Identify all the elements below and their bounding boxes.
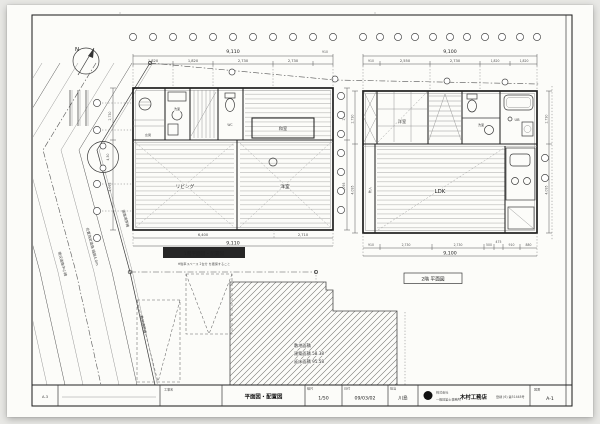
title-block: A-3 工事名 平面図・配置図 縮尺 1/50 日付 09/03/02 担当 川… — [32, 385, 572, 406]
scale-label: 縮尺 — [307, 386, 313, 391]
company-logo-icon — [424, 391, 433, 400]
dim-v: 4,095 — [545, 186, 549, 195]
room-label-bedroom-1f: 洋室 — [280, 183, 290, 190]
plan-title-2f: 2階 平面図 — [421, 276, 445, 283]
dim-seg: 2,730 — [288, 59, 299, 63]
dim-seg: 910 — [368, 59, 374, 63]
dim-seg: 1,820 — [188, 59, 199, 63]
dim-v: 4,095 — [351, 186, 355, 195]
dim-v: 2,730 — [545, 115, 549, 124]
room-label-bath: UB — [514, 118, 520, 122]
dim-seg: 2,730 — [402, 243, 411, 247]
dim-overall: 9,110 — [226, 241, 239, 247]
room-label-ldk: LDK — [435, 189, 446, 195]
dim-seg: 2,730 — [238, 59, 249, 63]
floor-plan-drawing: N 4, — [7, 5, 593, 417]
genkan-1f — [133, 98, 165, 126]
dim-seg: 1,820 — [491, 59, 500, 63]
dim-seg: 2,710 — [298, 233, 309, 237]
existing-building-hatch: 敷地面積 建築面積 58.38 延床面積 95.58 — [230, 282, 405, 385]
dims-top-1f: 9,110 910 1,820 1,820 2,730 2,730 — [133, 49, 333, 88]
toilet-2f-icon — [462, 94, 500, 135]
date-value: 09/03/02 — [354, 396, 375, 402]
tree-circle: 4,50 — [88, 142, 119, 173]
room-label-wash-1f: 洗面 — [174, 106, 180, 111]
kitchen-counter-icon — [506, 148, 535, 229]
building-2f: 洋室 洗面 UB LDK 物入 — [363, 91, 537, 233]
dims-bottom-1f: 6,400 2,710 9,110 — [133, 230, 333, 247]
dim-seg: 1,820 — [148, 59, 159, 63]
road-label-0: 道路境界線 — [121, 209, 131, 228]
dim-seg: 2,730 — [454, 243, 463, 247]
grid-bubbles-2f — [359, 33, 540, 40]
dim-overall-2f: 9,100 — [443, 49, 456, 55]
north-arrow-icon: N — [73, 47, 99, 75]
plan-label-2f: 2階 平面図 — [404, 273, 462, 284]
dim-seg: 1,820 — [520, 59, 529, 63]
toilet-1f-icon — [225, 93, 235, 112]
bathtub-icon — [504, 95, 533, 136]
company-name: 木村工務店 — [459, 393, 488, 401]
dim-seg: 2,730 — [450, 59, 461, 63]
room-label-wash-2f: 洗面 — [478, 122, 484, 127]
grid-bubbles-2f-left — [337, 92, 344, 213]
sheet-number: A-1 — [546, 396, 554, 402]
tree-dim: 4,50 — [106, 154, 110, 161]
room-label-living: リビング — [176, 183, 195, 190]
dim-seg: 2,550 — [400, 59, 411, 63]
plan-title-1f: 1階平面図・配置図 — [184, 250, 225, 257]
building-1f: 和室 リビング 洋室 玄関 洗面 WC — [133, 88, 333, 230]
bedroom-grid-2f — [378, 92, 427, 142]
closet-braces-2f — [364, 92, 376, 142]
dims-left-2f: 2,730 4,095 — [351, 91, 359, 233]
dim-seg: 910 — [509, 243, 515, 247]
dim-seg: 475 — [496, 240, 502, 244]
area-line-1: 敷地面積 — [294, 342, 312, 349]
room-label-washitsu: 和室 — [279, 125, 287, 132]
stairs-2f — [429, 94, 461, 140]
area-line-2: 建築面積 58.38 — [294, 350, 324, 357]
sheet-label: 図番 — [534, 387, 540, 392]
room-label-genkan: 玄関 — [145, 132, 151, 137]
stairs-1f — [191, 90, 216, 138]
dim-overall: 9,100 — [443, 251, 456, 257]
dim-seg: 500 — [486, 243, 492, 247]
dim-extra-1f: 910 — [322, 50, 328, 54]
drawing-sheet: N 4, — [7, 5, 593, 417]
grid-bubbles-1f — [129, 33, 336, 40]
dim-v: 2,730 — [108, 112, 112, 121]
room-label-closet: 物入 — [367, 187, 372, 193]
room-label-wc-1f: WC — [227, 123, 232, 127]
plan-note-1f: ※駐車スペース 2台分 を確保すること — [178, 261, 231, 266]
date-label: 日付 — [344, 386, 350, 391]
dim-overall-1f: 9,110 — [226, 49, 239, 55]
dims-right-2f: 2,730 4,095 — [541, 91, 552, 233]
dim-seg: 6,400 — [198, 233, 209, 237]
company-prefix: 株式会社 — [436, 390, 448, 395]
staff-value: 川島 — [398, 395, 408, 402]
drawing-title: 平面図・配置図 — [245, 393, 283, 401]
staff-label: 担当 — [390, 386, 396, 391]
road-label-2: 現況道路中心線 — [57, 251, 68, 277]
room-label-bedroom-2f: 洋室 — [398, 118, 406, 125]
dim-v: 2,730 — [351, 115, 355, 124]
washstand-1f-icon — [168, 92, 186, 135]
parking-outline — [137, 274, 232, 382]
area-line-3: 延床面積 95.58 — [294, 358, 324, 365]
sheet-code: A-3 — [42, 395, 48, 399]
name-label: 工事名 — [164, 387, 173, 392]
plan-label-1f: 1階平面図・配置図 ※駐車スペース 2台分 を確保すること — [163, 247, 245, 266]
dim-seg: 910 — [368, 243, 374, 247]
north-label: N — [75, 47, 79, 53]
north-boundary-line — [150, 63, 540, 84]
company-reg: 登録 (6) 第51448号 — [496, 394, 525, 399]
scale-value: 1/50 — [318, 396, 329, 402]
dims-bottom-2f: 910 2,730 2,730 500 475 910 880 9,100 — [363, 233, 537, 257]
company-sub: 一級建築士事務所 — [436, 397, 461, 402]
dims-top-2f: 9,100 910 2,550 2,730 1,820 1,820 — [363, 49, 537, 91]
dim-seg: 880 — [526, 243, 532, 247]
